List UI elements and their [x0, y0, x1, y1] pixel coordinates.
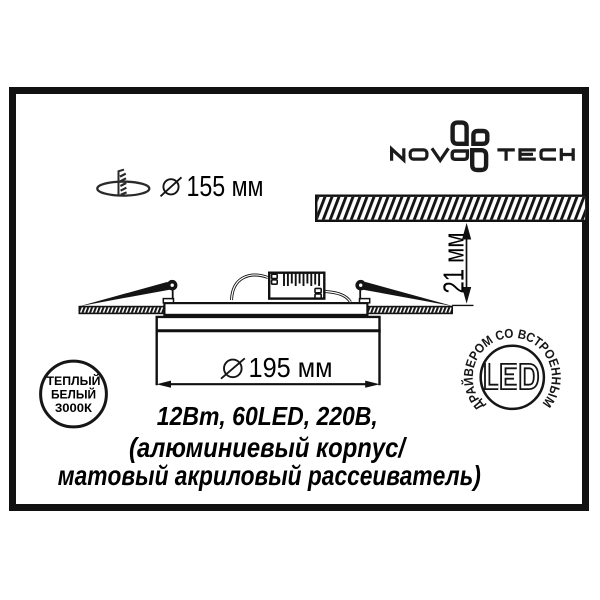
svg-text:195 мм: 195 мм: [249, 352, 333, 383]
svg-text:155 мм: 155 мм: [187, 171, 264, 203]
svg-text:3000К: 3000К: [55, 401, 93, 415]
svg-text:21 мм: 21 мм: [439, 233, 471, 294]
svg-text:12Вm, 60LED, 220В,: 12Вm, 60LED, 220В,: [157, 401, 378, 431]
svg-text:маmовый акрuловый рассеuваmель: маmовый акрuловый рассеuваmель): [58, 460, 481, 491]
svg-text:(алюмuнuевый корnус/: (алюмuнuевый корnус/: [129, 432, 408, 463]
svg-text:ТЕПЛЫЙ: ТЕПЛЫЙ: [47, 373, 101, 388]
svg-text:БЕЛЫЙ: БЕЛЫЙ: [51, 387, 96, 402]
